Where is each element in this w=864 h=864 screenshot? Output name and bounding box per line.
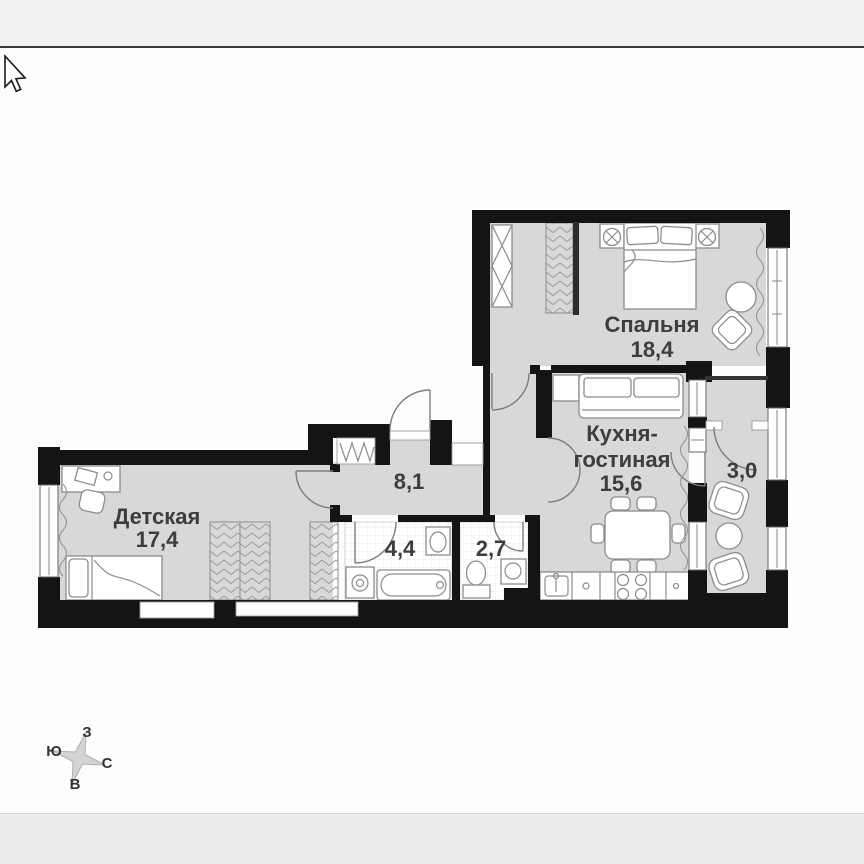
bedroom-round-table [726, 282, 756, 312]
bedroom-name-label: Спальня [604, 312, 699, 337]
balcony-area-label: 3,0 [727, 458, 758, 483]
kitchen-area-label: 15,6 [600, 471, 643, 496]
bedroom-wardrobe-mirror [492, 225, 512, 307]
nightstand-left [600, 224, 624, 248]
kitchen-side-table [553, 375, 579, 401]
compass-rose: З Ю С В [46, 724, 112, 793]
balcony-window-2 [768, 527, 786, 570]
screenshot-stage: Спальня 18,4 Кухня- гостиная 15,6 8,1 Де… [0, 0, 864, 864]
bathtub [377, 570, 450, 600]
double-bed [624, 223, 696, 309]
kitchen-name-line1: Кухня- [586, 421, 658, 446]
children-name-label: Детская [114, 504, 201, 529]
balcony-door-frame [689, 428, 706, 452]
bedroom-area-label: 18,4 [631, 337, 675, 362]
nightstand-right [695, 224, 719, 248]
window-sill-left [140, 602, 214, 618]
compass-west-label: З [82, 724, 91, 741]
children-area-label: 17,4 [136, 527, 180, 552]
balcony-top-partition [705, 376, 768, 380]
children-wardrobe-3 [310, 522, 338, 600]
kitchen-counter [540, 572, 689, 600]
hallway-floor [333, 462, 540, 515]
entrance-threshold [390, 431, 430, 440]
washing-machine [346, 567, 374, 598]
children-wardrobe-2 [240, 522, 270, 600]
bedroom-partition-stub [573, 222, 579, 315]
compass-north-label: С [102, 755, 113, 772]
balcony-inner-window-top [689, 380, 706, 417]
hall-closet [337, 438, 375, 464]
window-sill-center [236, 602, 358, 616]
children-bed [66, 556, 162, 600]
floor-plan-image: Спальня 18,4 Кухня- гостиная 15,6 8,1 Де… [0, 0, 864, 864]
mouse-cursor [5, 56, 25, 91]
balcony-pouf [716, 523, 742, 549]
entry-niche [452, 443, 483, 465]
balcony-inner-window-bottom [689, 522, 706, 570]
compass-south-label: Ю [46, 743, 61, 760]
bathroom-area-label: 4,4 [385, 536, 416, 561]
balcony-window-1 [768, 408, 786, 480]
bathroom-sink [426, 527, 450, 555]
entrance-door [390, 390, 430, 430]
sofa [579, 374, 683, 418]
bedroom-wardrobe [546, 223, 573, 313]
hallway-area-label: 8,1 [394, 469, 425, 494]
kitchen-name-line2: гостиная [574, 447, 671, 472]
bedroom-window [768, 248, 787, 347]
toilet-sink [501, 559, 526, 584]
compass-east-label: В [70, 776, 81, 793]
children-wardrobe-1 [210, 522, 240, 600]
entrance-floor [390, 438, 432, 464]
balcony-jamb-right [752, 421, 768, 430]
toilet-area-label: 2,7 [476, 536, 507, 561]
children-window [40, 485, 58, 577]
